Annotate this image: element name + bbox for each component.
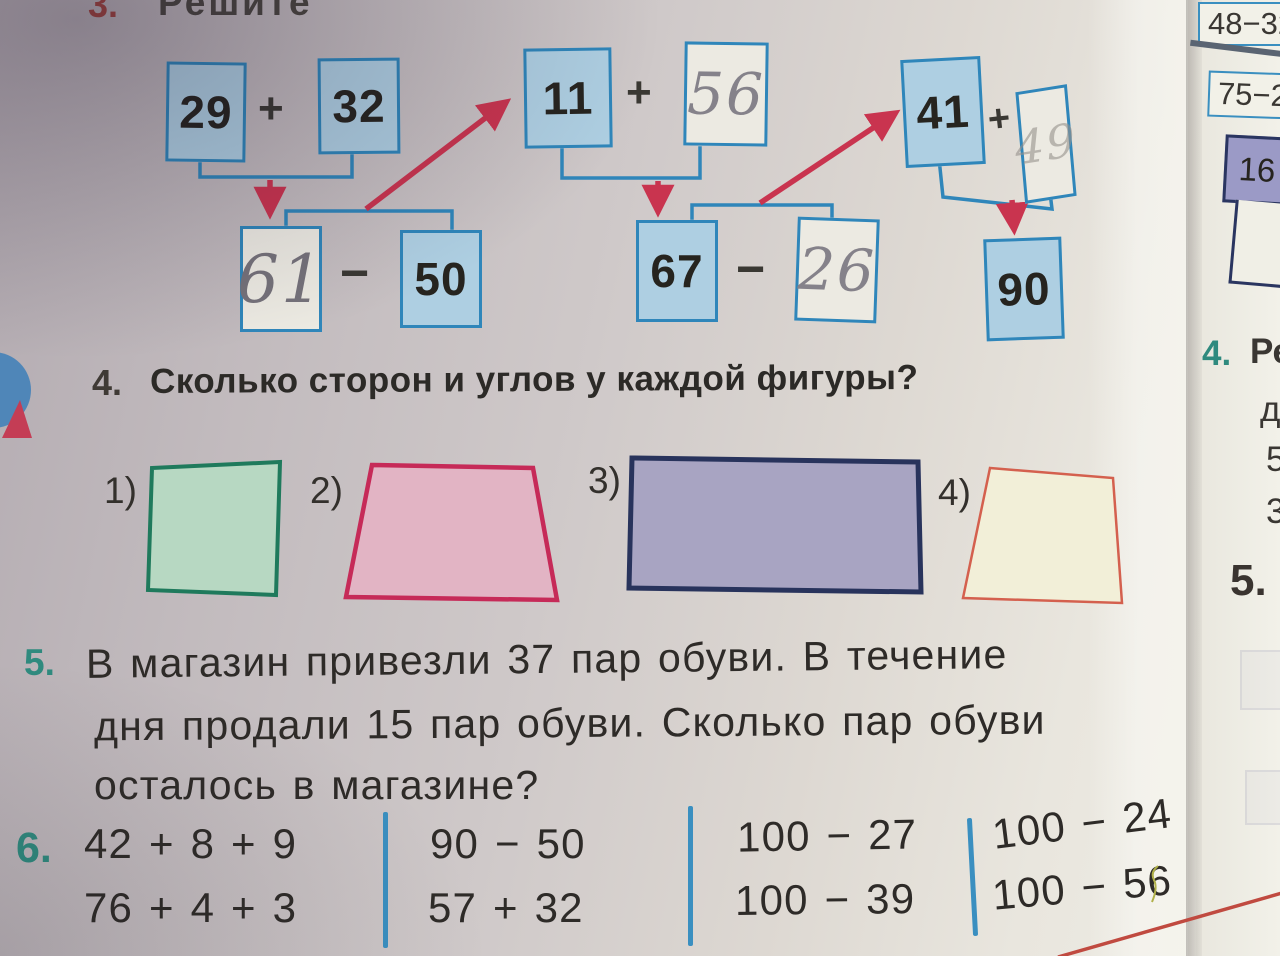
page-bottom-decorations	[0, 0, 1280, 956]
pencil-squiggle	[1152, 866, 1158, 902]
textbook-page-photo: 3. Решите 29 + 32 61 − 50 11 + 56 67	[0, 0, 1280, 956]
red-margin-line	[1058, 893, 1280, 956]
